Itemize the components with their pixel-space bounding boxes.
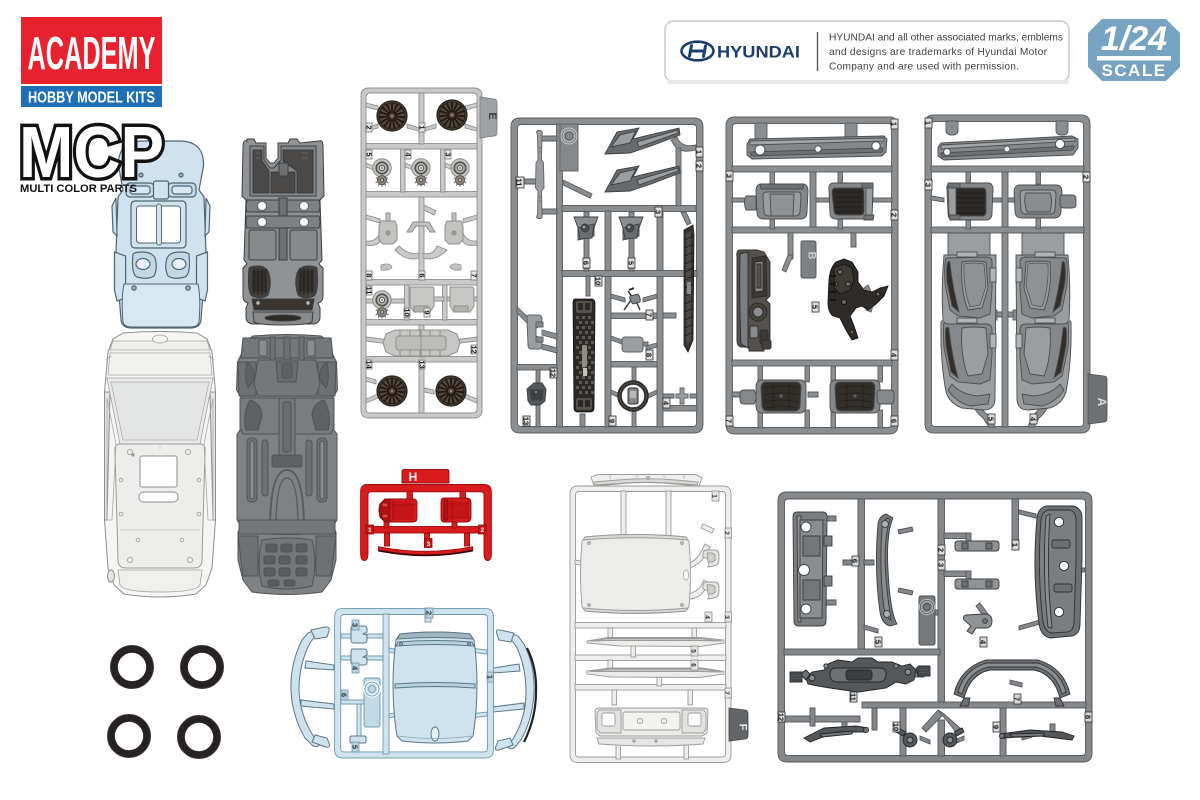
svg-text:5: 5	[690, 649, 697, 653]
svg-text:5: 5	[987, 417, 996, 421]
svg-text:2: 2	[425, 611, 434, 615]
svg-text:8: 8	[365, 273, 374, 277]
svg-text:3: 3	[654, 210, 663, 214]
svg-text:12: 12	[470, 345, 479, 353]
svg-text:6: 6	[418, 273, 427, 277]
svg-text:2: 2	[695, 164, 704, 168]
svg-text:3: 3	[937, 563, 946, 567]
svg-text:HYUNDAI and all other associat: HYUNDAI and all other associated marks, …	[829, 33, 1063, 44]
svg-text:6: 6	[890, 419, 899, 423]
svg-text:5: 5	[811, 305, 820, 309]
svg-text:SCALE: SCALE	[1101, 61, 1166, 80]
svg-text:6: 6	[851, 559, 860, 563]
svg-text:3: 3	[426, 541, 430, 548]
svg-text:7: 7	[723, 691, 730, 695]
svg-text:7: 7	[1013, 697, 1022, 701]
svg-text:A: A	[1095, 398, 1109, 407]
svg-text:and designs are trademarks of: and designs are trademarks of Hyundai Mo…	[829, 47, 1048, 58]
svg-text:E: E	[486, 112, 498, 119]
svg-text:2: 2	[723, 531, 730, 535]
svg-text:6: 6	[582, 261, 591, 265]
svg-text:3: 3	[924, 183, 933, 187]
svg-text:11: 11	[849, 693, 858, 701]
svg-text:ACADEMY: ACADEMY	[28, 27, 156, 79]
svg-text:1: 1	[711, 494, 718, 498]
svg-text:1: 1	[695, 150, 704, 154]
svg-text:3: 3	[351, 623, 360, 627]
svg-text:8: 8	[1084, 715, 1093, 719]
svg-text:2: 2	[480, 527, 484, 534]
svg-text:13: 13	[522, 417, 531, 425]
svg-text:10: 10	[403, 308, 412, 316]
svg-text:5: 5	[351, 745, 360, 749]
svg-text:9: 9	[992, 725, 1001, 729]
svg-text:8: 8	[645, 353, 654, 357]
svg-text:1/24: 1/24	[1101, 20, 1167, 58]
svg-text:7: 7	[725, 419, 734, 423]
svg-text:7: 7	[470, 273, 479, 277]
svg-text:9: 9	[608, 419, 617, 423]
svg-text:2: 2	[890, 213, 899, 217]
svg-text:HYUNDAI: HYUNDAI	[717, 44, 800, 62]
svg-text:2: 2	[1082, 175, 1091, 179]
svg-text:6: 6	[340, 693, 349, 697]
svg-text:5: 5	[365, 152, 374, 156]
svg-text:6: 6	[690, 663, 697, 667]
svg-text:1: 1	[368, 527, 372, 534]
svg-text:3: 3	[444, 152, 453, 156]
svg-text:13: 13	[418, 360, 427, 368]
svg-text:3: 3	[723, 615, 730, 619]
svg-text:MCP: MCP	[19, 113, 164, 193]
svg-text:2: 2	[365, 125, 374, 129]
svg-text:7: 7	[645, 313, 654, 317]
svg-text:1: 1	[890, 122, 899, 126]
svg-text:11: 11	[365, 287, 374, 295]
svg-text:5: 5	[874, 640, 883, 644]
svg-text:Company and are used with perm: Company and are used with permission.	[829, 62, 1019, 73]
svg-text:1: 1	[1011, 543, 1020, 547]
svg-text:3: 3	[725, 174, 734, 178]
svg-text:B: B	[806, 252, 818, 260]
svg-text:14: 14	[365, 360, 374, 369]
svg-text:10: 10	[892, 723, 901, 731]
svg-text:12: 12	[777, 713, 786, 721]
svg-text:H: H	[409, 470, 418, 484]
svg-text:5: 5	[627, 261, 636, 265]
svg-text:1: 1	[418, 125, 427, 129]
svg-text:MULTI COLOR PARTS: MULTI COLOR PARTS	[20, 183, 137, 195]
svg-text:4: 4	[704, 615, 711, 619]
svg-text:12: 12	[549, 369, 558, 377]
svg-text:2: 2	[937, 548, 946, 552]
svg-text:HOBBY MODEL KITS: HOBBY MODEL KITS	[28, 90, 155, 107]
svg-text:9: 9	[423, 310, 432, 314]
svg-text:1: 1	[486, 675, 495, 679]
svg-text:10: 10	[594, 277, 603, 285]
svg-text:1: 1	[924, 121, 933, 125]
svg-text:11: 11	[515, 179, 524, 187]
svg-text:F: F	[737, 724, 749, 731]
